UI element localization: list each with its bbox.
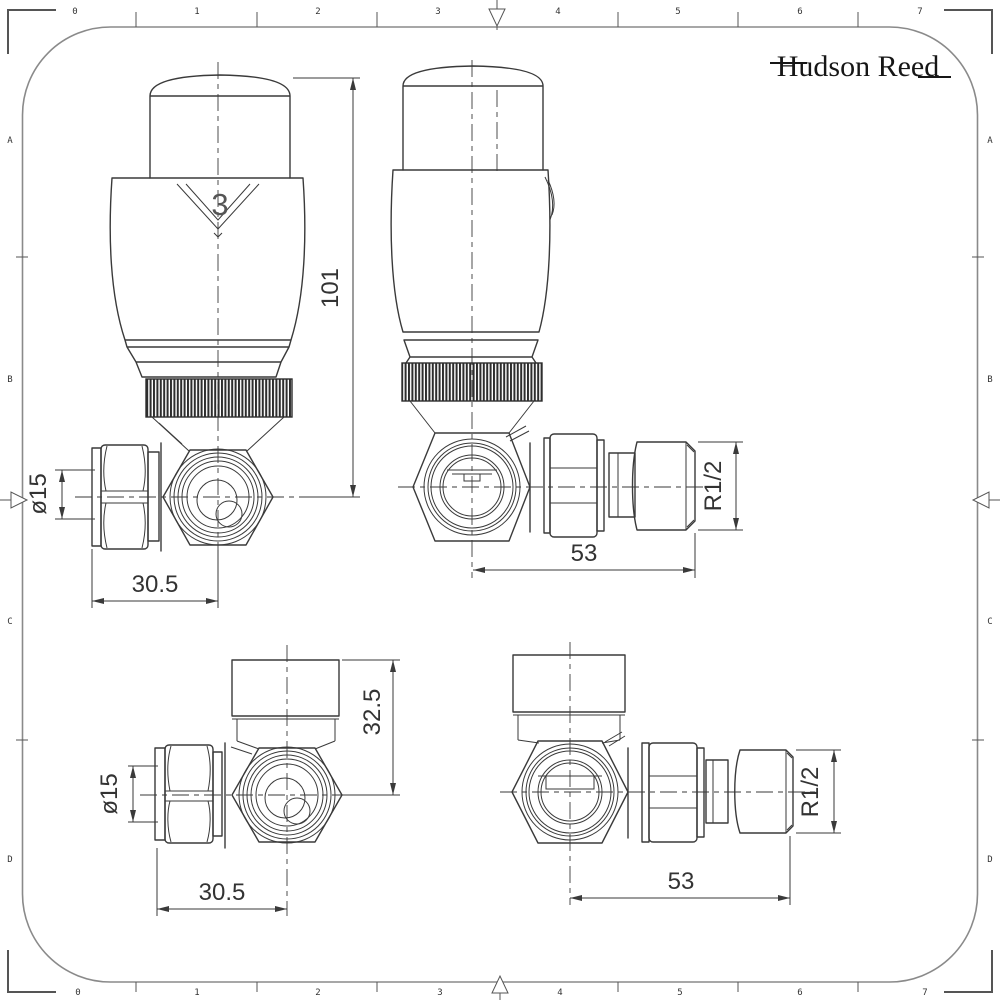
head-setting-number: 3: [211, 187, 228, 222]
ruler-top-number: 2: [315, 7, 320, 17]
spindle-housing: [232, 660, 339, 741]
ruler-bottom-number: 2: [315, 988, 320, 998]
head-cap: [403, 66, 543, 170]
ruler-right-letter: C: [987, 617, 992, 627]
spindle-housing: [513, 655, 625, 740]
dimension-label: ø15: [25, 473, 52, 514]
dimension-label: 53: [668, 868, 695, 895]
neck-cylinder: [609, 453, 635, 517]
drawing-corner-front: 32.5 ø15 30.5: [96, 645, 400, 916]
ruler-top-number: 1: [194, 7, 199, 17]
corner-mark-top-left: [8, 10, 56, 54]
ruler-bottom-number: 3: [437, 988, 442, 998]
valve-body-side: [410, 401, 695, 541]
brand-logo: Hudson Reed: [770, 50, 951, 83]
drawing-trv-side: R1/2 53: [391, 60, 743, 578]
ruler-right-letter: B: [987, 375, 992, 385]
extension-lines: [55, 470, 95, 519]
dimension-label: 30.5: [132, 571, 179, 598]
union-nut: [550, 434, 597, 537]
knurled-ring: [146, 379, 292, 417]
dimension-30-5: 30.5: [92, 549, 218, 608]
valve-body-side: [512, 732, 793, 843]
ruler-top-number: 0: [72, 7, 77, 17]
knurled-ring: [402, 363, 542, 401]
ruler-bottom-number: 5: [677, 988, 682, 998]
head-body: [391, 170, 550, 363]
dimension-thread: R1/2: [796, 750, 841, 833]
center-arrow-top: [489, 9, 505, 26]
dimension-label: R1/2: [700, 461, 727, 512]
dimension-53: 53: [570, 836, 790, 905]
brand-logo-text: Hudson Reed: [777, 50, 939, 83]
dimension-label: 32.5: [359, 689, 386, 736]
fitting-nut: [165, 745, 213, 843]
dimension-pipe-diameter: ø15: [25, 470, 95, 519]
union-nut: [649, 743, 697, 842]
dimension-label: 30.5: [199, 879, 246, 906]
ruler-left-letter: D: [7, 855, 12, 865]
housing-block: [232, 660, 339, 716]
housing-block: [513, 655, 625, 712]
dimension-label: ø15: [96, 773, 123, 814]
nut-facets: [550, 468, 597, 503]
technical-drawing-sheet: 0 1 2 3 4 5 6 7 0 1 2 3 4 5 6 7 A B C D: [0, 0, 1000, 1000]
nut-flange-left: [544, 438, 550, 533]
ruler-bottom-number: 6: [797, 988, 802, 998]
ruler-right-letter: A: [987, 136, 993, 146]
nut-facets: [165, 746, 213, 842]
trv-head: 3: [110, 75, 305, 417]
ruler-left: A B C D: [0, 136, 28, 865]
dimension-32-5: 32.5: [342, 660, 400, 795]
thread-end-detail: [686, 442, 694, 530]
ruler-top-number: 6: [797, 7, 802, 17]
fitting-collar: [213, 752, 222, 836]
ruler-bottom-number: 1: [194, 988, 199, 998]
fitting-flange: [155, 748, 165, 840]
dimension-53: 53: [473, 533, 695, 578]
valve-body-front: [225, 741, 342, 848]
dimension-label: R1/2: [797, 767, 824, 818]
housing-lip: [513, 715, 625, 740]
dimension-thread: R1/2: [698, 442, 743, 530]
dimension-101: 101: [293, 78, 360, 497]
compression-fitting: [155, 745, 222, 843]
head-cap: [150, 75, 290, 178]
threaded-tail: [735, 750, 793, 833]
drawing-trv-front: 3 101: [25, 62, 360, 608]
ruler-top-number: 4: [555, 7, 560, 17]
dimension-label: 53: [571, 540, 598, 567]
ruler-left-letter: B: [7, 375, 12, 385]
dimension-pipe-diameter: ø15: [96, 766, 158, 822]
valve-hex-body: [163, 450, 273, 545]
drawing-corner-side: R1/2 53: [500, 642, 841, 905]
ruler-bottom-number: 4: [557, 988, 562, 998]
ruler-top-number: 3: [435, 7, 440, 17]
dimension-30-5: 30.5: [157, 848, 287, 916]
nut-flange-left: [642, 743, 649, 842]
corner-mark-top-right: [944, 10, 992, 54]
dimension-label: 101: [317, 268, 344, 308]
ruler-right: A B C D: [972, 136, 1000, 865]
corner-marks: [8, 10, 992, 992]
thread-end-detail: [786, 750, 792, 833]
neck-cylinder: [706, 760, 728, 823]
trv-head: [391, 66, 554, 401]
nut-flange-right: [697, 748, 704, 837]
ruler-left-letter: A: [7, 136, 13, 146]
housing-lip: [232, 719, 339, 741]
nut-flange-right: [597, 440, 604, 531]
ruler-top-number: 5: [675, 7, 680, 17]
ruler-left-letter: C: [7, 617, 12, 627]
center-arrow-bottom: [492, 976, 508, 993]
ruler-top-number: 7: [917, 7, 922, 17]
center-arrow-right: [973, 492, 989, 508]
fitting-collar: [148, 452, 159, 541]
ruler-bottom-number: 0: [75, 988, 80, 998]
ruler-bottom-number: 7: [922, 988, 927, 998]
ruler-right-letter: D: [987, 855, 992, 865]
ruler-bottom: 0 1 2 3 4 5 6 7: [75, 976, 927, 1000]
